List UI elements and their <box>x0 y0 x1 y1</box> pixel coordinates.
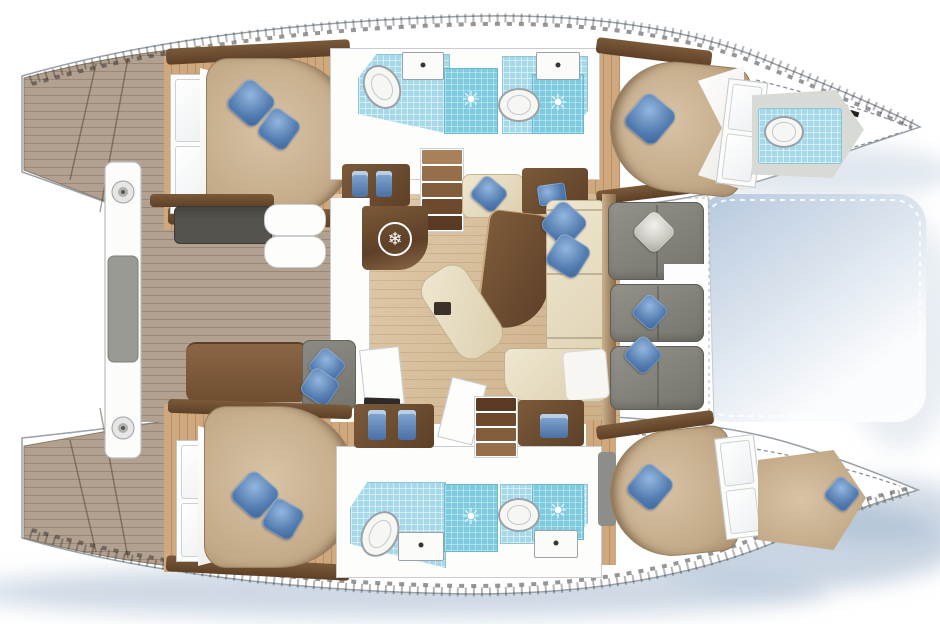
shower-drain-icon: ☀ <box>548 501 568 523</box>
sink <box>402 52 444 80</box>
cockpit-bench-fwd <box>186 342 308 402</box>
toilet <box>498 498 540 532</box>
shower-drain-icon: ☀ <box>461 90 481 112</box>
shower-stall: ☀ <box>444 68 498 134</box>
settee-throw <box>562 348 610 402</box>
catamaran-floorplan: ☀ ☀ ❄ <box>0 0 940 624</box>
hanging-shirt <box>368 410 386 440</box>
shower-stall: ☀ <box>444 484 498 552</box>
shower-drain-icon: ☀ <box>548 93 568 115</box>
cockpit-bench-aft <box>174 206 272 244</box>
hanging-shirt <box>398 410 416 440</box>
double-bed <box>204 406 358 568</box>
sink <box>534 530 578 558</box>
toilet <box>764 116 804 148</box>
companionway-steps <box>474 396 518 458</box>
snowflake-glyph: ❄ <box>387 229 402 250</box>
cockpit-table-seat <box>264 204 326 236</box>
sink <box>536 52 580 80</box>
sink <box>398 532 444 561</box>
floor-hatch <box>434 302 451 315</box>
fridge-snowflake-icon: ❄ <box>378 222 412 256</box>
towel <box>352 171 368 197</box>
fwd-sofa-notch <box>664 264 704 280</box>
shower-drain-icon: ☀ <box>461 507 481 529</box>
aft-crossbeam <box>105 162 141 458</box>
towel <box>540 414 568 438</box>
cockpit-table-seat <box>264 236 326 268</box>
trampoline <box>698 194 926 422</box>
toilet <box>498 88 540 122</box>
closet <box>354 404 434 448</box>
towel <box>376 171 392 197</box>
